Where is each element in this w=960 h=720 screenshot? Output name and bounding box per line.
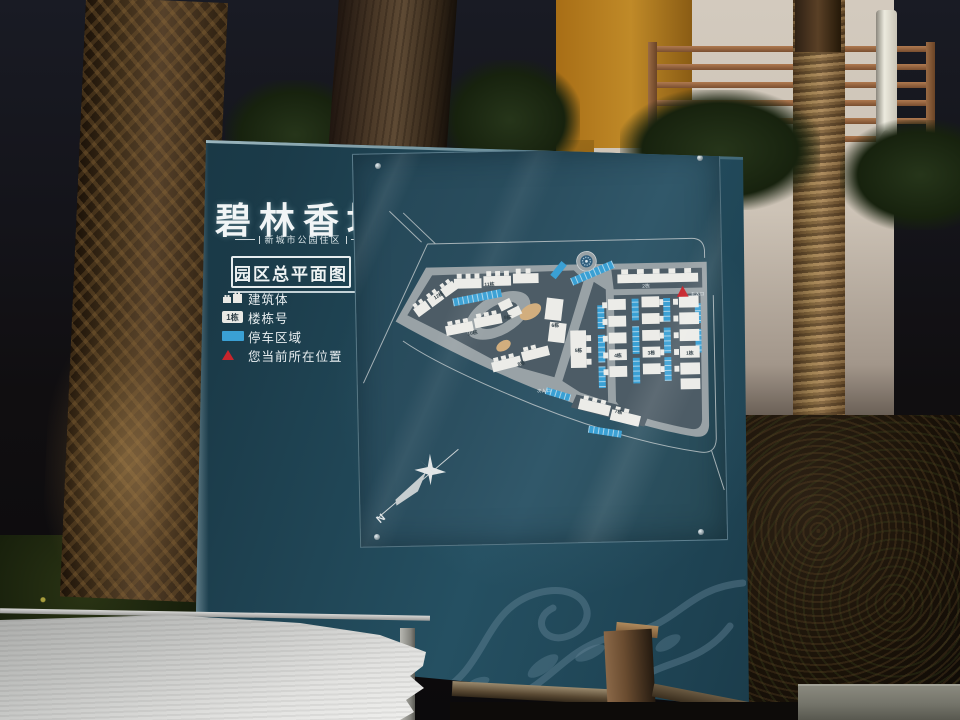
- svg-text:2栋: 2栋: [642, 283, 650, 290]
- legend-item-parking: 停车区域: [222, 328, 302, 344]
- legend-item-current-location: 您当前所在位置: [222, 347, 343, 363]
- landscape-oval: [494, 337, 513, 354]
- palm-trunk-top: [795, 0, 841, 52]
- building-number-box: 1栋: [222, 311, 243, 323]
- loop-road: [457, 281, 538, 350]
- svg-text:10栋: 10栋: [467, 329, 479, 338]
- north-label: N: [374, 512, 388, 526]
- screw: [374, 534, 380, 540]
- svg-text:7栋: 7栋: [614, 408, 623, 417]
- subtitle-text: 新城市公园住区: [264, 233, 341, 246]
- external-road-lines: [360, 204, 724, 497]
- screw: [697, 155, 703, 161]
- building-labels: 1栋 2栋 3栋 4栋 5栋 6栋 7栋 8栋 9栋 10栋 11栋 12栋: [432, 277, 695, 420]
- legend-item-building-number: 1栋 楼栋号: [222, 309, 289, 325]
- legend-label: 建筑体: [248, 289, 289, 308]
- svg-text:8栋: 8栋: [517, 359, 526, 368]
- acrylic-map-panel: 主入口 次入口 1栋 2栋 3栋 4栋 5栋 6栋 7栋 8栋 9栋 10栋 1…: [352, 146, 728, 548]
- parking-icon: [222, 331, 248, 341]
- subtitle-line: [235, 239, 255, 240]
- night-photo-scene: 碧林香堤 新城市公园住区 园区总平面图: [0, 0, 960, 720]
- svg-text:12栋: 12栋: [432, 290, 445, 301]
- site-blocks: [406, 268, 705, 435]
- subtitle-bar: [259, 236, 260, 244]
- screw: [375, 163, 381, 169]
- building-icon: [222, 292, 248, 305]
- buildings: [410, 265, 701, 432]
- roundabout: [576, 251, 596, 271]
- legend-label: 停车区域: [248, 327, 302, 346]
- screw: [698, 529, 704, 535]
- building-number-icon: 1栋: [222, 311, 248, 323]
- site-plan-map: 主入口 次入口 1栋 2栋 3栋 4栋 5栋 6栋 7栋 8栋 9栋 10栋 1…: [353, 147, 727, 547]
- svg-text:1栋: 1栋: [686, 350, 694, 357]
- location-triangle-icon: [222, 350, 248, 360]
- curb: [798, 684, 960, 720]
- svg-text:3栋: 3栋: [648, 349, 656, 356]
- compass: N: [373, 449, 460, 526]
- legend-label: 楼栋号: [248, 308, 289, 327]
- svg-text:6栋: 6栋: [551, 322, 559, 329]
- rope-wrapped-palm-trunk: [793, 0, 845, 480]
- subtitle-bar: [346, 236, 347, 244]
- bushes: [742, 415, 960, 705]
- landscape-oval: [517, 300, 544, 324]
- legend-label: 您当前所在位置: [248, 346, 343, 365]
- ground: [450, 702, 810, 720]
- floral-decoration: [418, 548, 746, 700]
- main-entrance-label: 主入口: [691, 290, 705, 296]
- plan-title-box: 园区总平面图: [231, 256, 351, 288]
- you-are-here-marker: [677, 286, 689, 297]
- svg-text:5栋: 5栋: [575, 347, 583, 354]
- site-roads: [395, 262, 711, 443]
- shrub: [840, 120, 960, 230]
- legend-item-building: 建筑体: [222, 290, 289, 306]
- svg-text:9栋: 9栋: [504, 314, 512, 321]
- svg-text:4栋: 4栋: [614, 352, 622, 359]
- loop-island: [474, 296, 521, 334]
- parking-areas: [452, 258, 704, 441]
- svg-text:11栋: 11栋: [484, 281, 494, 288]
- secondary-entrance-label: 次入口: [537, 387, 551, 394]
